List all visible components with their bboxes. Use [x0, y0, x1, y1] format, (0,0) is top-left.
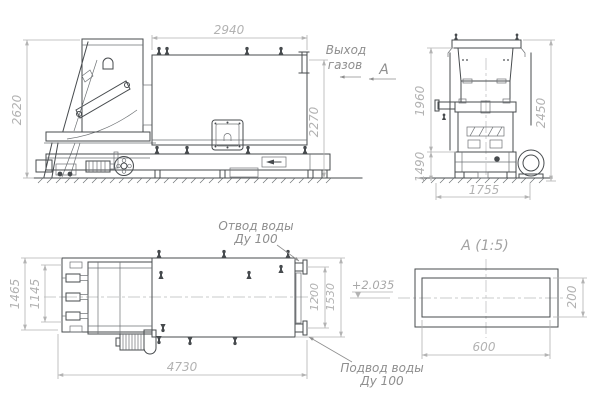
- drawing-canvas: 2940 2620 2270 Выход газов А: [0, 0, 600, 400]
- dim-label-4730: 4730: [167, 360, 198, 374]
- plan-body: [152, 250, 307, 345]
- plan-bolts: [156, 250, 290, 345]
- dim-label-1145: 1145: [28, 279, 42, 310]
- technical-drawing: 2940 2620 2270 Выход газов А: [0, 0, 600, 400]
- water-outlet-label-line1: Отвод воды: [218, 219, 293, 233]
- level-mark-label: +2.035: [352, 278, 395, 292]
- water-outlet-label-line2: Ду 100: [233, 232, 278, 246]
- dim-label-2940: 2940: [214, 23, 245, 37]
- section-cut-arrow: А: [369, 62, 396, 79]
- flow-arrow-box: [262, 157, 286, 167]
- dim-label-1755: 1755: [469, 183, 500, 197]
- hopper-window: [103, 58, 113, 69]
- section-arrow-label: А: [378, 62, 389, 78]
- gas-outlet-annotation: Выход газов: [326, 43, 366, 77]
- base-frame: [455, 152, 516, 178]
- dim-label-200: 200: [565, 285, 579, 308]
- feeder-mechanism: [62, 258, 156, 354]
- front-view: 1960 1490 2450 1755: [413, 34, 556, 200]
- water-inlet-label-line2: Ду 100: [359, 374, 404, 388]
- side-view: 2940 2620 2270 Выход газов А: [10, 23, 396, 183]
- fan: [518, 150, 544, 178]
- dim-label-1490: 1490: [413, 151, 427, 182]
- drive-unit: [36, 152, 134, 176]
- water-outlet-annotation: Отвод воды Ду 100: [218, 219, 299, 261]
- plan-view: 1465 1145 4730 1200 1530 Отвод: [8, 219, 424, 388]
- lifting-bolts: [156, 47, 283, 55]
- level-mark: +2.035: [350, 278, 394, 298]
- boiler-body: [152, 47, 309, 150]
- dim-label-2450: 2450: [534, 97, 548, 128]
- dim-plan-feeder-inner: 1145: [28, 265, 62, 322]
- side-pipe: [435, 100, 455, 120]
- ash-conveyor: [46, 146, 330, 178]
- dim-label-1960: 1960: [413, 85, 427, 116]
- dim-label-1530: 1530: [324, 283, 337, 311]
- ground-line: [34, 178, 362, 183]
- dim-side-width: 2940: [152, 23, 307, 50]
- dim-front-width: 1755: [436, 183, 530, 200]
- section-title: А (1:5): [460, 238, 508, 254]
- drive-sprocket: [115, 157, 134, 176]
- water-inlet-label-line1: Подвод воды: [340, 361, 423, 375]
- water-outlet-flange: [295, 260, 307, 274]
- hopper: [82, 39, 152, 132]
- fuel-feeder: [44, 42, 156, 177]
- dim-label-2620: 2620: [10, 94, 24, 125]
- water-inlet-annotation: Подвод воды Ду 100: [309, 337, 424, 388]
- dim-plan-length: 4730: [58, 334, 307, 379]
- dim-label-1465: 1465: [8, 279, 22, 310]
- gas-outlet-label-line1: Выход: [326, 43, 366, 57]
- section-view: А (1:5) 600 200: [398, 238, 587, 359]
- dim-label-1200: 1200: [308, 283, 321, 311]
- dim-label-2270: 2270: [307, 106, 321, 137]
- front-machine: [435, 34, 544, 178]
- dim-front-total-height: 2450: [523, 40, 556, 181]
- gas-outlet-label-line2: газов: [328, 58, 362, 72]
- dim-label-600: 600: [473, 340, 496, 354]
